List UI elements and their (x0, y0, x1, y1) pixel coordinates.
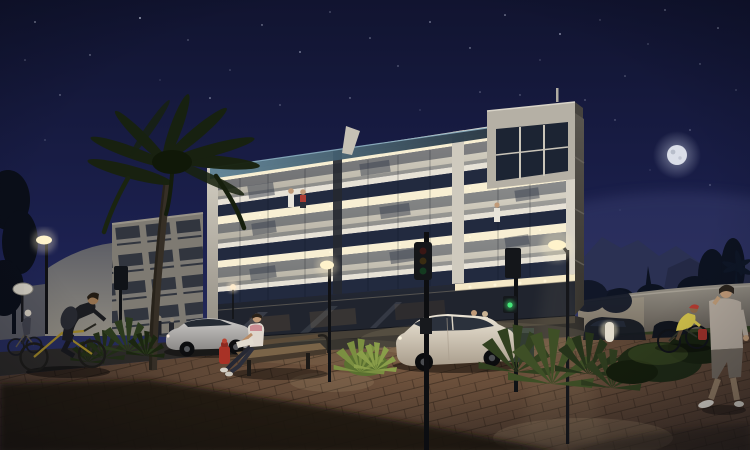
night-render-scene (0, 0, 750, 450)
vignette-overlay (0, 0, 750, 450)
scene-svg (0, 0, 750, 450)
